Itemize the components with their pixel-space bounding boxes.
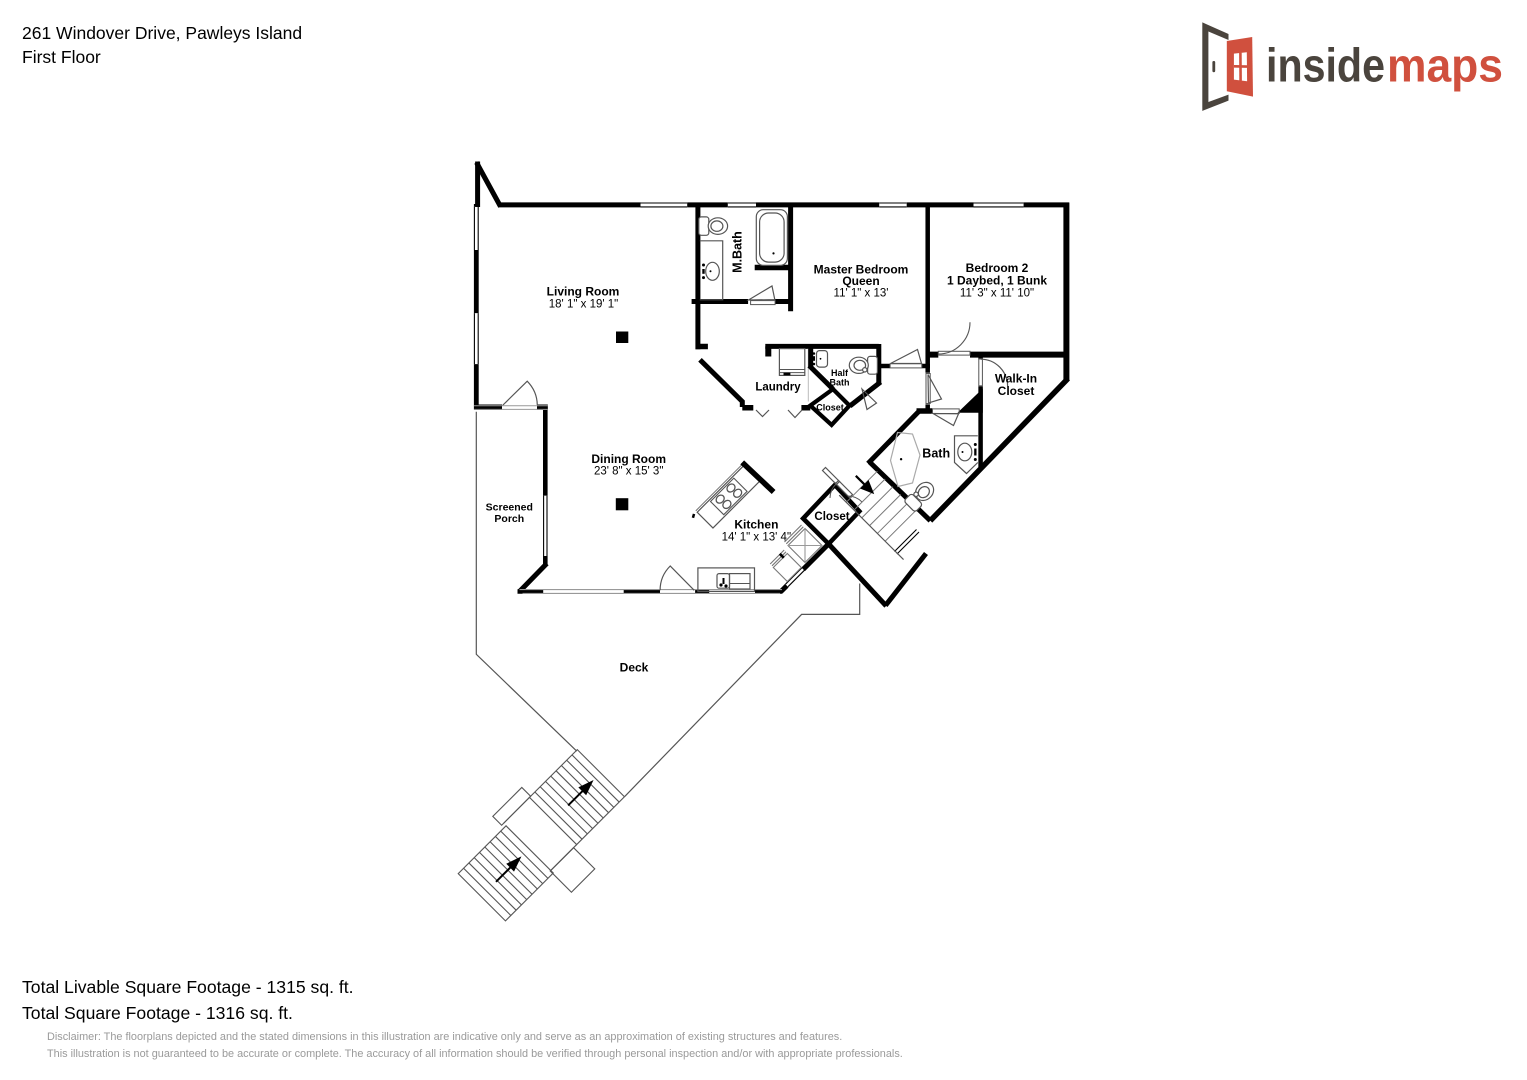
svg-text:Dining Room: Dining Room: [591, 452, 666, 466]
svg-text:Laundry: Laundry: [755, 382, 801, 394]
svg-text:Queen: Queen: [842, 274, 879, 288]
svg-text:Closet: Closet: [816, 403, 844, 413]
svg-text:Bath: Bath: [922, 446, 950, 460]
svg-text:Half: Half: [831, 368, 849, 378]
svg-text:Porch: Porch: [494, 513, 524, 525]
svg-text:11' 3" x 11' 10": 11' 3" x 11' 10": [960, 287, 1034, 299]
svg-text:11' 1" x 13': 11' 1" x 13': [834, 287, 889, 299]
svg-text:M.Bath: M.Bath: [731, 231, 745, 273]
svg-text:maps: maps: [1387, 39, 1503, 92]
svg-text:inside: inside: [1266, 39, 1385, 92]
svg-text:Bath: Bath: [830, 377, 850, 387]
svg-text:Living Room: Living Room: [547, 285, 620, 299]
svg-text:Closet: Closet: [998, 384, 1035, 398]
svg-text:1 Daybed, 1 Bunk: 1 Daybed, 1 Bunk: [947, 274, 1047, 288]
svg-text:14' 1" x 13' 4": 14' 1" x 13' 4": [722, 532, 791, 544]
svg-text:18' 1" x 19' 1": 18' 1" x 19' 1": [549, 298, 618, 310]
svg-text:Closet: Closet: [814, 511, 849, 523]
svg-text:23' 8" x 15' 3": 23' 8" x 15' 3": [594, 466, 663, 478]
svg-text:Screened: Screened: [486, 501, 533, 513]
svg-text:Deck: Deck: [620, 661, 649, 675]
svg-text:Kitchen: Kitchen: [734, 518, 778, 532]
